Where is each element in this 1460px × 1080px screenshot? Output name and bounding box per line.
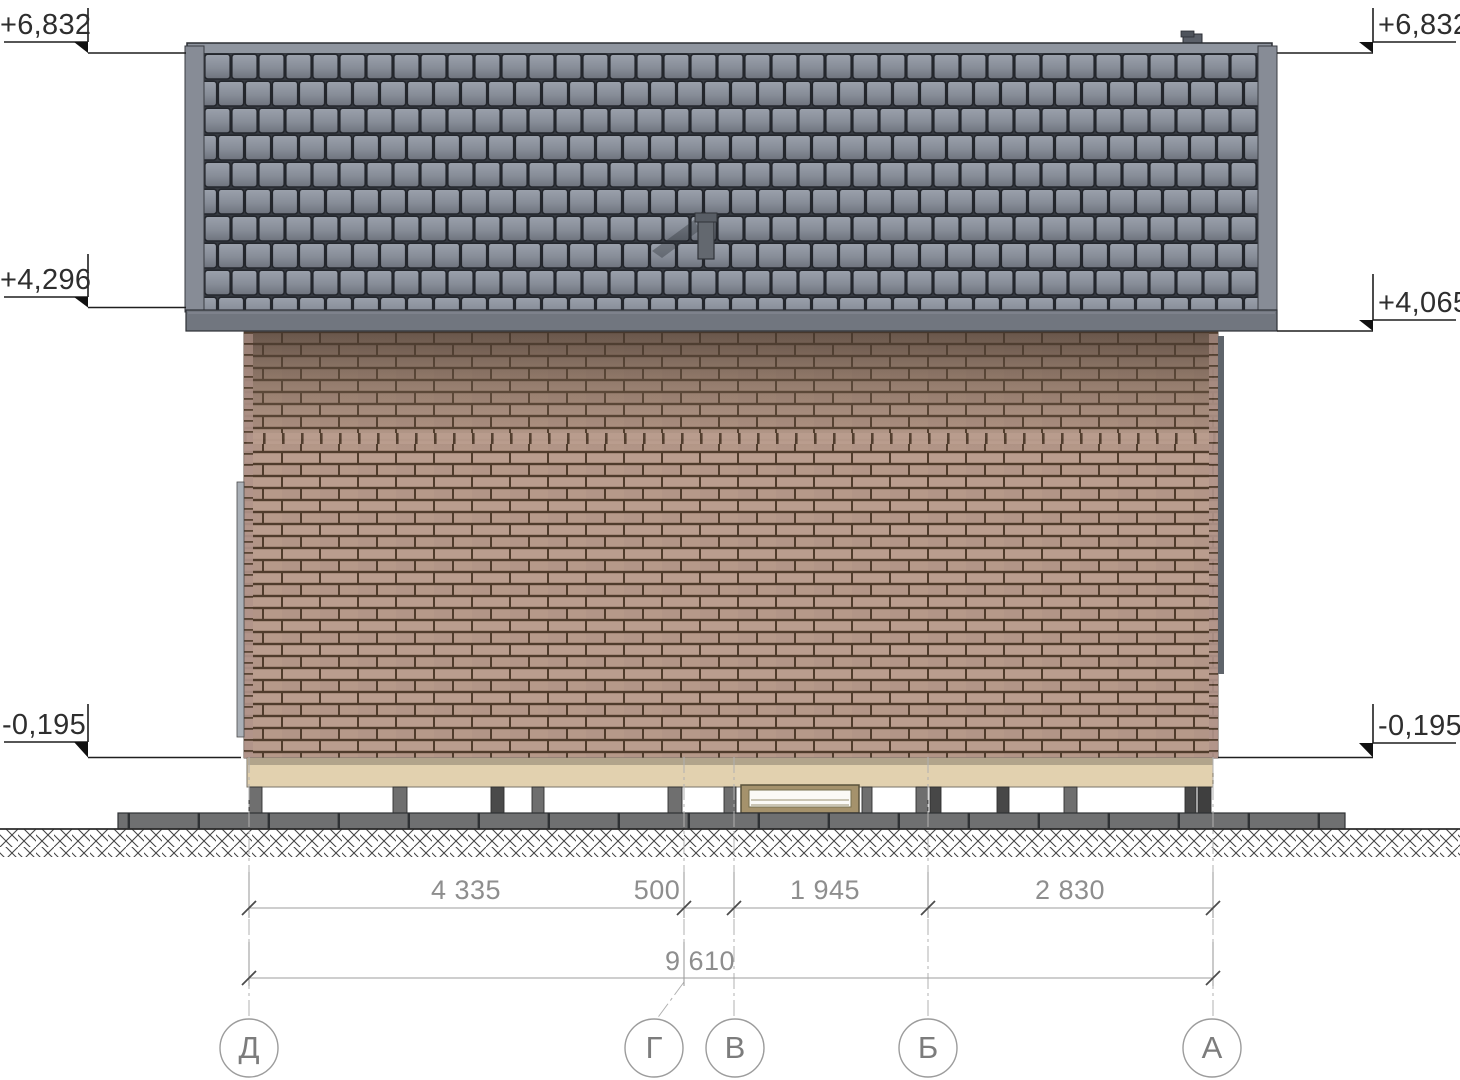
dim-label-g-v: 500: [587, 875, 727, 906]
axis-bubble-label-d: Д: [219, 1018, 279, 1078]
elevation-mark-mid-left: +4,296: [0, 264, 86, 297]
dim-label-b-a: 2 830: [1000, 875, 1140, 906]
elevation-drawing-canvas: +6,832 +4,296 -0,195 +6,832 +4,065 -0,19…: [0, 0, 1460, 1080]
right-corner-trim: [1218, 336, 1224, 674]
ground: [0, 829, 1460, 857]
axis-bubble-label-b: Б: [898, 1018, 958, 1078]
dim-label-d-g: 4 335: [396, 875, 536, 906]
foundation: [118, 758, 1345, 829]
axis-bubble-label-v: В: [705, 1018, 765, 1078]
elevation-drawing-svg: [0, 0, 1460, 1080]
right-barge-board: [1258, 46, 1277, 312]
earth-hatch: [0, 829, 1460, 857]
crawlspace-hatch-door: [741, 785, 859, 813]
brick-wall: [237, 332, 1224, 758]
ground-beam-blocks: [118, 813, 1345, 829]
roof-vent-pipe: [698, 219, 714, 259]
roof: [185, 31, 1277, 331]
left-barge-board: [185, 46, 204, 312]
elevation-mark-bottom-left: -0,195: [0, 709, 86, 742]
left-downspout: [237, 482, 244, 737]
elevation-mark-bottom-right: -0,195: [1378, 710, 1460, 743]
axis-bubble-label-g: Г: [624, 1018, 684, 1078]
dim-label-v-b: 1 945: [755, 875, 895, 906]
elevation-mark-top-left: +6,832: [0, 9, 86, 42]
dim-label-total: 9 610: [630, 946, 770, 977]
elevation-mark-mid-right: +4,065: [1378, 287, 1460, 320]
elevation-mark-top-right: +6,832: [1378, 9, 1460, 42]
roof-tiles: [204, 53, 1261, 310]
plinth-top-strip: [247, 758, 1213, 765]
axis-bubble-label-a: А: [1182, 1018, 1242, 1078]
